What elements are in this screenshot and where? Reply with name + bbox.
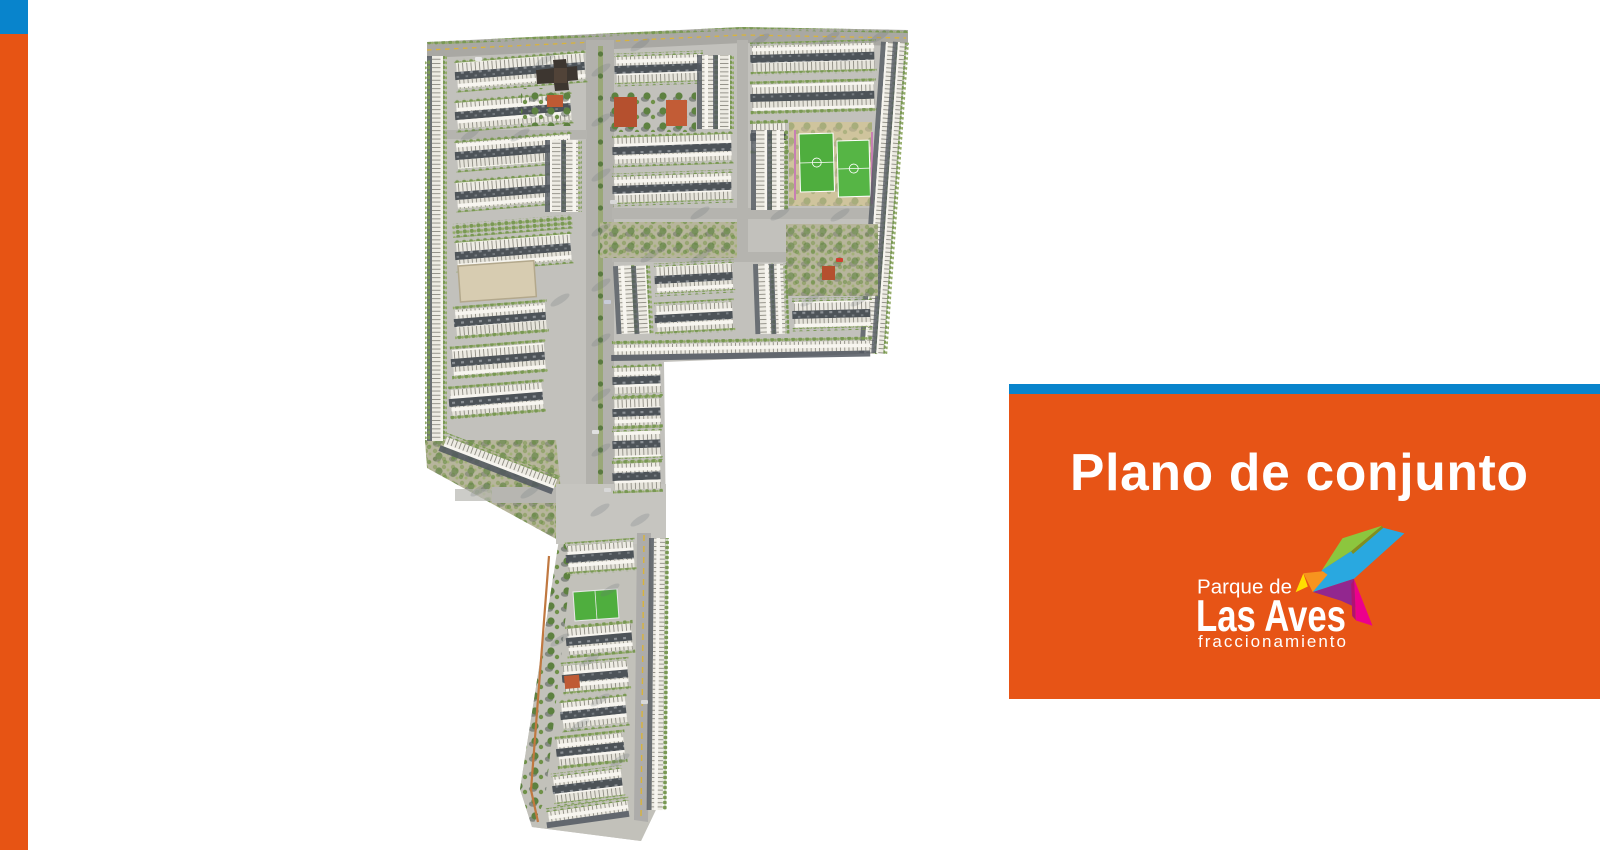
svg-text:Plano de conjunto: Plano de conjunto	[1070, 443, 1528, 501]
